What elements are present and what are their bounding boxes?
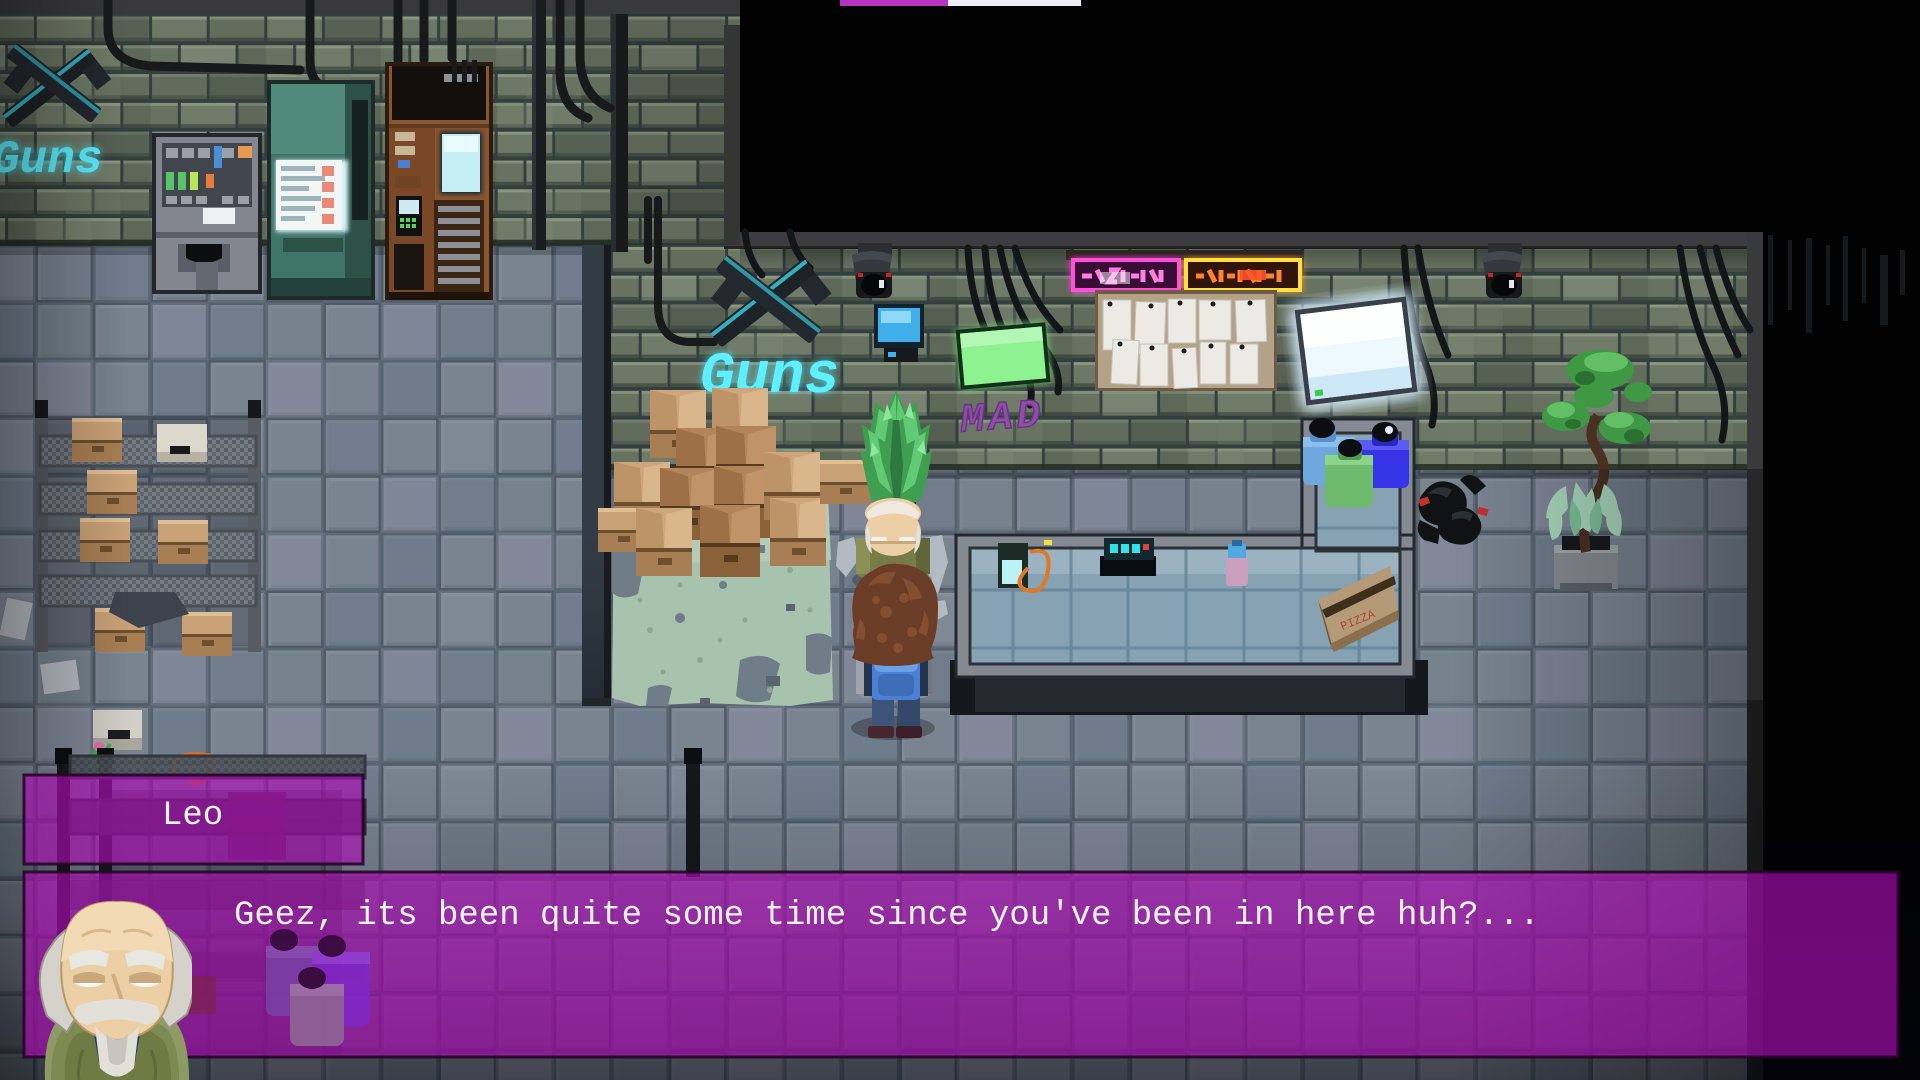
svg-text:Geez, its been quite some time: Geez, its been quite some time since you… [234,897,1540,935]
svg-text:Leo: Leo [162,797,223,835]
